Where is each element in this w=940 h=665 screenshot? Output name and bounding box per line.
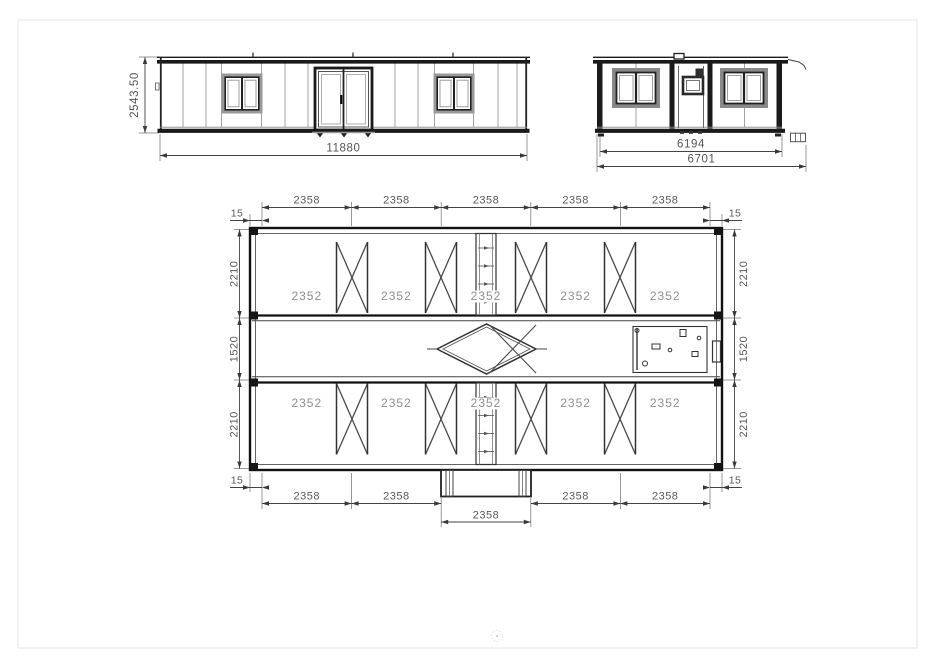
plan-top-dim-label: 2358 bbox=[562, 195, 588, 207]
foot bbox=[365, 133, 371, 138]
module-post bbox=[708, 63, 713, 129]
plan-top-dim-label: 2358 bbox=[294, 195, 320, 207]
plan-offset-dim-label: 15 bbox=[231, 208, 243, 220]
dim-arrow bbox=[799, 164, 806, 168]
plan-left-dim-label: 2210 bbox=[229, 411, 241, 437]
dim-arrow bbox=[434, 205, 441, 209]
dim-arrow bbox=[262, 501, 269, 505]
corner-post bbox=[597, 63, 603, 129]
dim-arrow bbox=[237, 373, 241, 380]
dim-arrow bbox=[597, 164, 604, 168]
dim-arrow bbox=[345, 501, 352, 505]
dim-arrow bbox=[732, 318, 736, 325]
vent-box bbox=[696, 69, 704, 77]
dim-arrow bbox=[600, 149, 607, 153]
dim-arrow bbox=[732, 380, 736, 387]
foot bbox=[341, 133, 347, 138]
dim-arrow bbox=[143, 57, 147, 64]
plan-top-dim-label: 2358 bbox=[473, 195, 499, 207]
wall-bracket bbox=[156, 83, 160, 90]
dim-arrow bbox=[237, 462, 241, 469]
plan-left-dim-label: 1520 bbox=[229, 336, 241, 362]
bay-dim-label: 2352 bbox=[560, 289, 591, 303]
gutter-hook bbox=[788, 60, 806, 70]
corner-fitting bbox=[250, 463, 258, 470]
dim-arrow bbox=[262, 485, 269, 489]
window bbox=[223, 75, 261, 112]
foot bbox=[317, 133, 323, 138]
plan-offset-dim-label: 15 bbox=[729, 475, 741, 487]
module-post bbox=[670, 63, 675, 129]
dim-arrow bbox=[620, 205, 627, 209]
bay-dim-label: 2352 bbox=[650, 289, 681, 303]
plan-right-dim-label: 2210 bbox=[738, 261, 750, 287]
dim-arrow bbox=[262, 218, 269, 222]
dim-arrow bbox=[531, 205, 538, 209]
corner-fitting bbox=[714, 312, 722, 320]
dim-arrow bbox=[143, 126, 147, 133]
dim-arrow bbox=[703, 218, 710, 222]
dim-arrow bbox=[441, 520, 448, 524]
plan-top-dim-label: 2358 bbox=[652, 195, 678, 207]
plan-top-dim-label: 2358 bbox=[383, 195, 409, 207]
window bbox=[614, 70, 658, 106]
bay-dim-label: 2352 bbox=[381, 289, 412, 303]
dim-arrow bbox=[243, 485, 250, 489]
dim-arrow bbox=[237, 230, 241, 237]
plan-bottom-dim-label: 2358 bbox=[294, 491, 320, 503]
dim-arrow bbox=[237, 380, 241, 387]
dim-arrow bbox=[434, 501, 441, 505]
dim-arrow bbox=[520, 153, 527, 157]
corner-fitting bbox=[250, 379, 258, 387]
corner-post bbox=[777, 63, 783, 129]
drawing-sheet: 2543.50 11880 6194 6701 15 2358 2358 235… bbox=[0, 0, 940, 665]
dim-arrow bbox=[352, 501, 359, 505]
dim-arrow bbox=[237, 311, 241, 318]
foot bbox=[598, 134, 604, 137]
plan-left-dim-label: 2210 bbox=[229, 261, 241, 287]
side-width-dim-label: 11880 bbox=[326, 143, 360, 155]
dim-arrow bbox=[703, 485, 710, 489]
dim-arrow bbox=[345, 205, 352, 209]
plan-center-dim-label: 2358 bbox=[473, 510, 499, 522]
dim-arrow bbox=[531, 501, 538, 505]
plan-right-dim-label: 1520 bbox=[738, 336, 750, 362]
plan-bottom-dim-label: 2358 bbox=[383, 491, 409, 503]
corner-fitting bbox=[714, 228, 722, 235]
service-box-detail bbox=[633, 327, 707, 373]
dim-arrow bbox=[524, 520, 531, 524]
bay-dim-label: 2352 bbox=[381, 396, 412, 410]
plan-offset-dim-label: 15 bbox=[729, 208, 741, 220]
dim-arrow bbox=[160, 153, 167, 157]
dim-arrow bbox=[732, 462, 736, 469]
corner-fitting bbox=[250, 312, 258, 320]
double-door bbox=[312, 68, 375, 133]
plot-mark bbox=[492, 631, 503, 642]
corner-fitting bbox=[714, 379, 722, 387]
dim-arrow bbox=[441, 205, 448, 209]
bay-dim-label: 2352 bbox=[471, 396, 502, 410]
plan-view bbox=[250, 228, 722, 497]
dim-arrow bbox=[613, 205, 620, 209]
corner-fitting bbox=[714, 463, 722, 470]
plan-bottom-dim-label: 2358 bbox=[562, 491, 588, 503]
bay-dim-label: 2352 bbox=[560, 396, 591, 410]
step-assembly bbox=[441, 470, 531, 497]
dim-arrow bbox=[732, 230, 736, 237]
dim-arrow bbox=[732, 311, 736, 318]
end-elevation-view bbox=[593, 54, 806, 142]
bay-dim-label: 2352 bbox=[291, 289, 322, 303]
dim-arrow bbox=[262, 205, 269, 209]
dim-arrow bbox=[620, 501, 627, 505]
bay-dim-label: 2352 bbox=[291, 396, 322, 410]
dim-arrow bbox=[237, 318, 241, 325]
dim-arrow bbox=[243, 218, 250, 222]
dim-arrow bbox=[732, 373, 736, 380]
dim-arrow bbox=[352, 205, 359, 209]
roof-cap bbox=[674, 54, 684, 60]
end-inner-width-dim-label: 6194 bbox=[677, 139, 705, 151]
dim-arrow bbox=[524, 205, 531, 209]
end-outer-width-dim-label: 6701 bbox=[688, 154, 716, 166]
engineering-drawing: 2543.50 11880 6194 6701 15 2358 2358 235… bbox=[0, 0, 940, 665]
foot bbox=[775, 134, 781, 137]
window bbox=[722, 70, 766, 106]
corner-fitting bbox=[250, 228, 258, 235]
bay-dim-label: 2352 bbox=[471, 289, 502, 303]
dim-arrow bbox=[703, 501, 710, 505]
side-step-detail bbox=[791, 133, 806, 142]
bay-dim-label: 2352 bbox=[650, 396, 681, 410]
center-door bbox=[679, 66, 704, 134]
plan-offset-dim-label: 15 bbox=[231, 475, 243, 487]
dim-arrow bbox=[703, 205, 710, 209]
dim-arrow bbox=[775, 149, 782, 153]
plan-right-dim-label: 2210 bbox=[738, 411, 750, 437]
dim-arrow bbox=[613, 501, 620, 505]
side-height-dim-label: 2543.50 bbox=[129, 72, 141, 118]
window bbox=[435, 75, 473, 112]
plan-bottom-dim-label: 2358 bbox=[652, 491, 678, 503]
